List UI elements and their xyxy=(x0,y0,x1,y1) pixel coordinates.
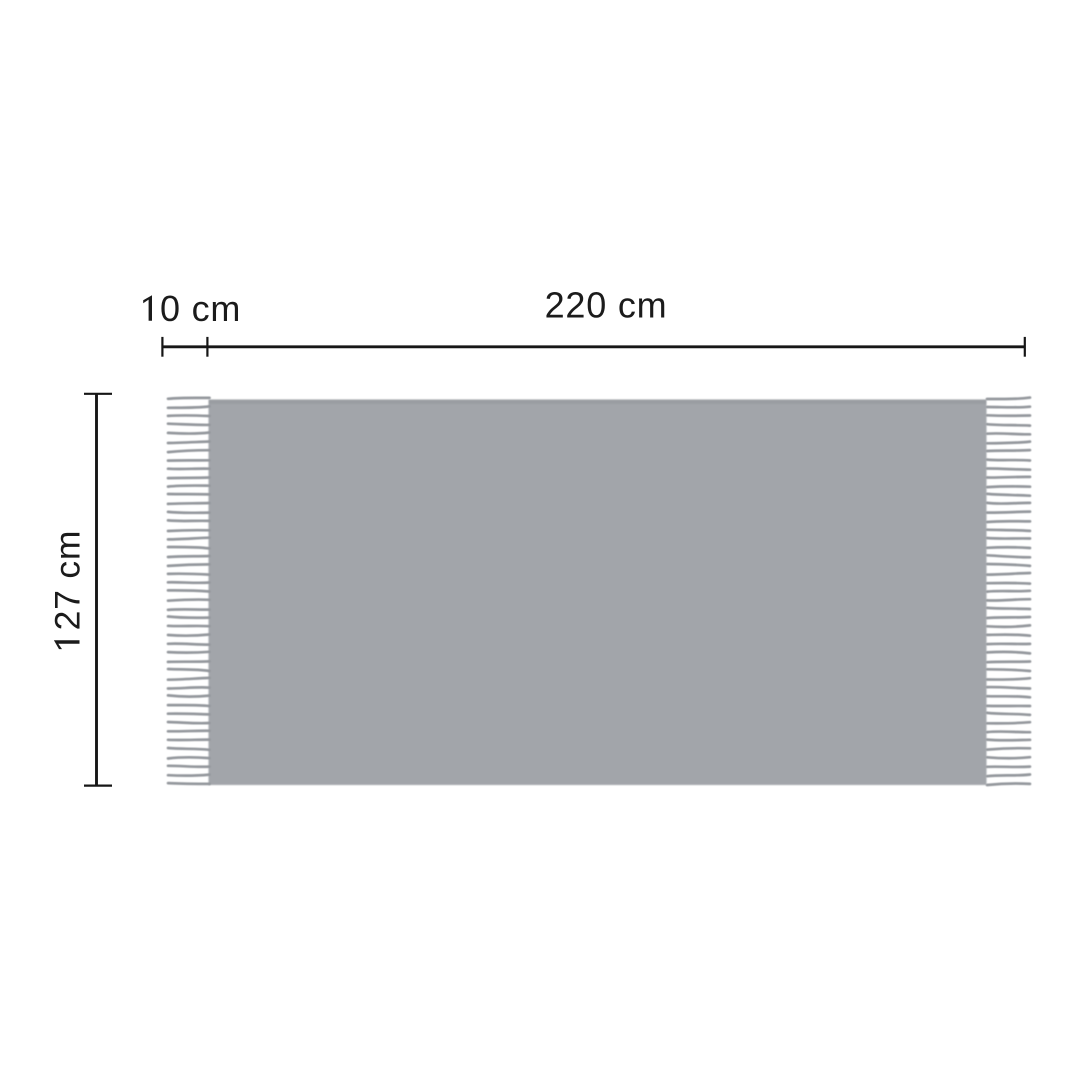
svg-text:220 cm: 220 cm xyxy=(545,285,668,326)
svg-text:27 cm: 27 cm xyxy=(48,530,88,631)
svg-text:0 cm: 0 cm xyxy=(160,288,241,329)
